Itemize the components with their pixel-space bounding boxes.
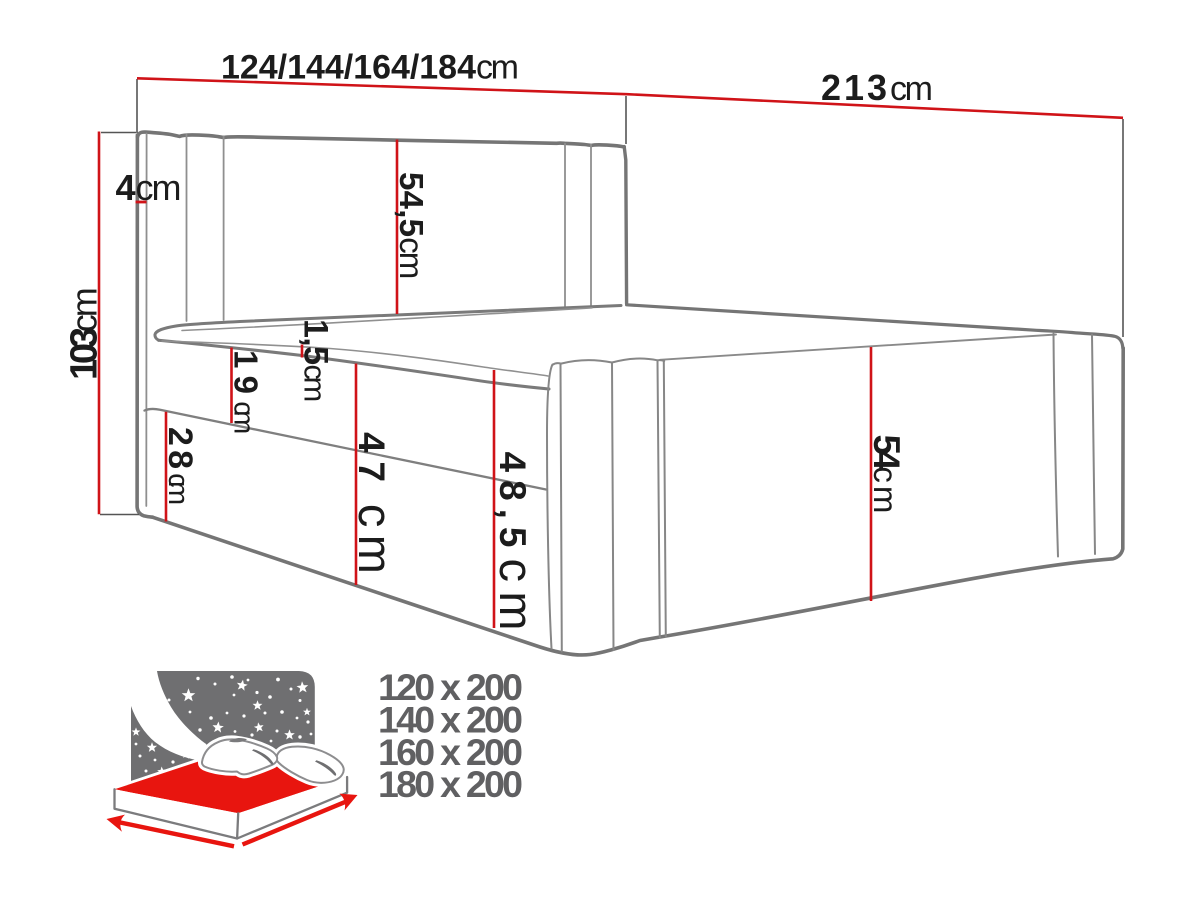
svg-text:103cm: 103cm [64, 287, 106, 380]
svg-text:180 x 200: 180 x 200 [378, 763, 523, 805]
svg-text:1,5cm: 1,5cm [297, 319, 335, 402]
svg-text:54cm: 54cm [866, 435, 907, 514]
svg-text:54,5cm: 54,5cm [393, 172, 430, 279]
svg-text:28cm: 28cm [161, 427, 199, 505]
svg-text:124/144/164/184cm: 124/144/164/184cm [221, 49, 519, 87]
svg-text:4cm: 4cm [116, 167, 182, 208]
svg-text:213cm: 213cm [821, 67, 933, 108]
svg-text:19cm: 19cm [228, 350, 265, 434]
